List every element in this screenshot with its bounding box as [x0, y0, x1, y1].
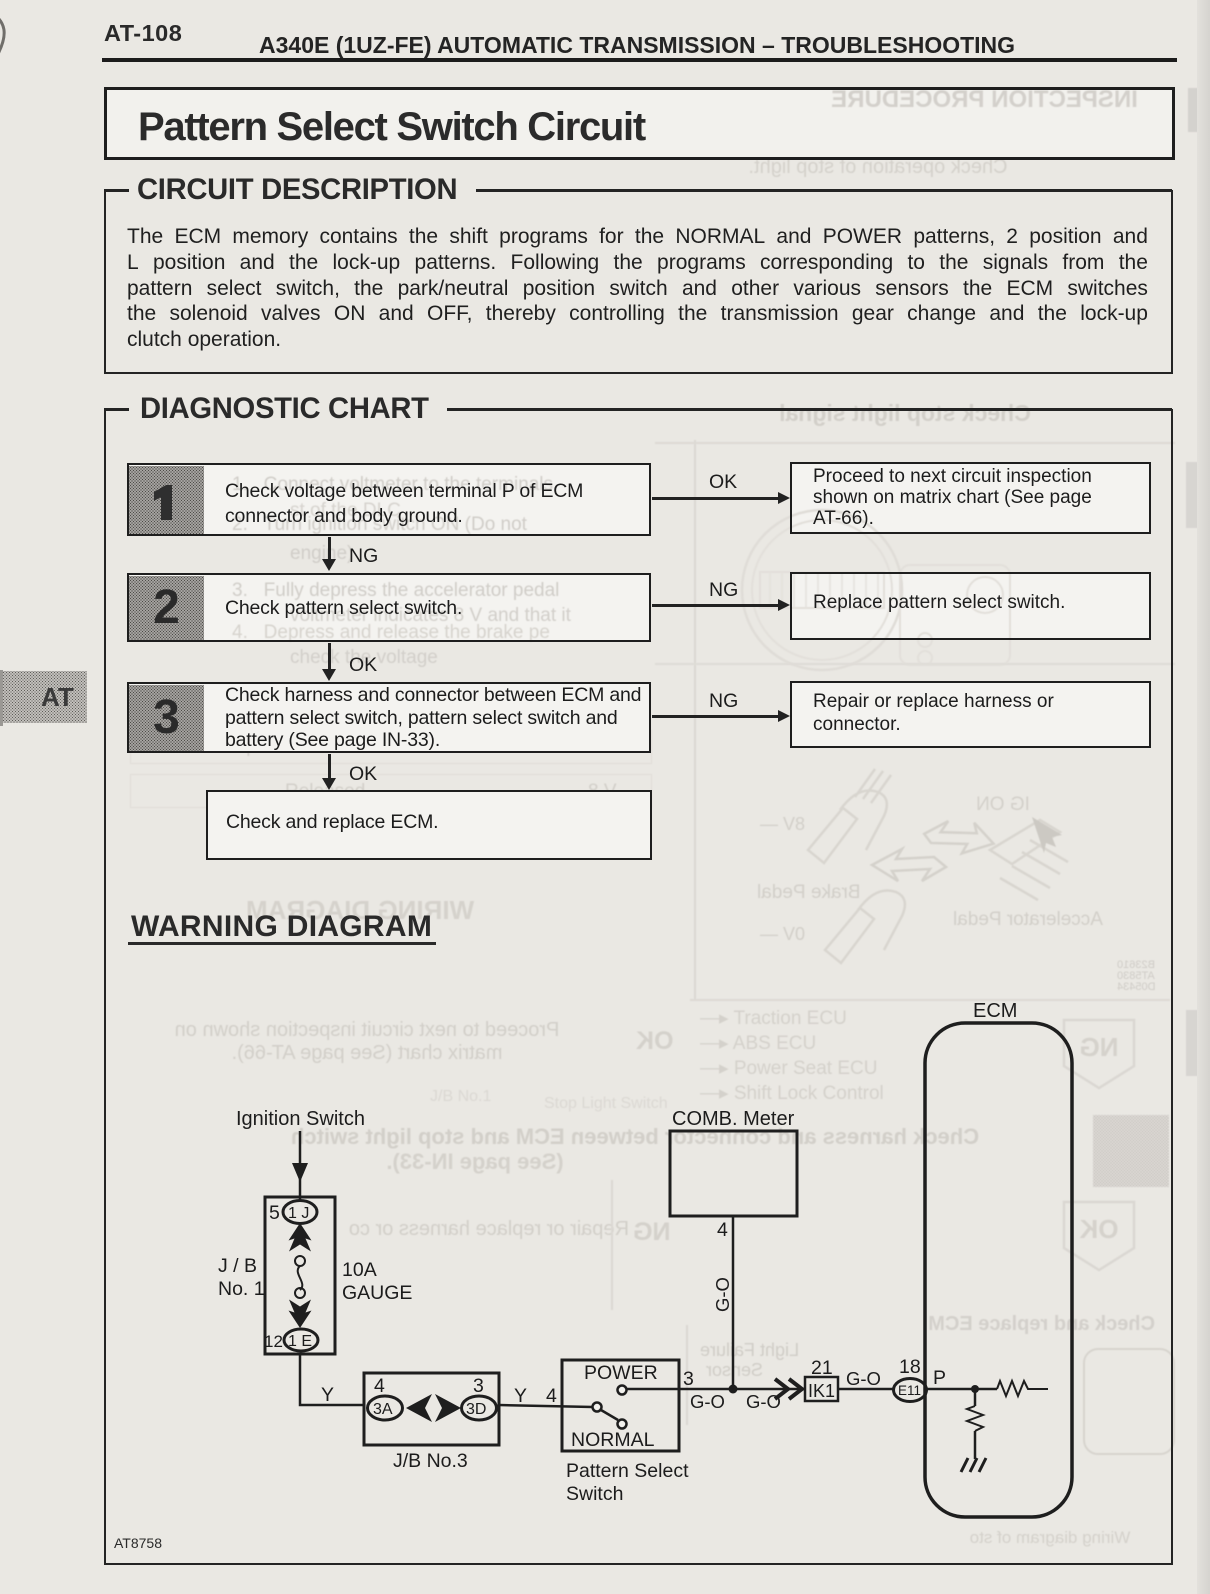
svg-text:J/B No.3: J/B No.3 — [393, 1450, 468, 1472]
svg-text:G-O: G-O — [690, 1391, 725, 1412]
svg-text:3D: 3D — [466, 1401, 486, 1418]
svg-text:NORMAL: NORMAL — [571, 1429, 655, 1451]
svg-text:POWER: POWER — [584, 1362, 658, 1384]
svg-text:G-O: G-O — [712, 1277, 733, 1312]
svg-text:P: P — [933, 1367, 946, 1389]
svg-text:12: 12 — [264, 1332, 283, 1351]
svg-text:G-O: G-O — [746, 1391, 781, 1412]
svg-text:18: 18 — [899, 1356, 921, 1378]
svg-text:Switch: Switch — [566, 1483, 623, 1505]
svg-text:No. 1: No. 1 — [218, 1278, 265, 1300]
svg-text:4: 4 — [546, 1385, 557, 1407]
svg-text:5: 5 — [269, 1202, 280, 1224]
svg-text:3: 3 — [473, 1375, 484, 1397]
svg-text:G-O: G-O — [846, 1368, 881, 1389]
svg-text:Y: Y — [321, 1384, 334, 1406]
svg-text:3: 3 — [683, 1368, 694, 1390]
svg-text:1 J: 1 J — [288, 1205, 309, 1222]
svg-text:COMB. Meter: COMB. Meter — [672, 1108, 795, 1130]
svg-text:3A: 3A — [373, 1401, 393, 1418]
svg-text:J / B: J / B — [218, 1255, 257, 1277]
svg-text:10A: 10A — [342, 1259, 377, 1281]
svg-text:4: 4 — [717, 1219, 728, 1241]
svg-text:GAUGE: GAUGE — [342, 1282, 412, 1304]
svg-text:Pattern Select: Pattern Select — [566, 1460, 689, 1482]
svg-text:E11: E11 — [898, 1383, 921, 1398]
svg-text:4: 4 — [374, 1375, 385, 1397]
svg-text:1 E: 1 E — [288, 1333, 312, 1350]
svg-text:Y: Y — [514, 1385, 527, 1407]
svg-text:ECM: ECM — [973, 1000, 1017, 1022]
svg-text:Ignition Switch: Ignition Switch — [236, 1108, 365, 1130]
svg-text:IK1: IK1 — [808, 1381, 835, 1401]
svg-text:21: 21 — [811, 1357, 833, 1379]
